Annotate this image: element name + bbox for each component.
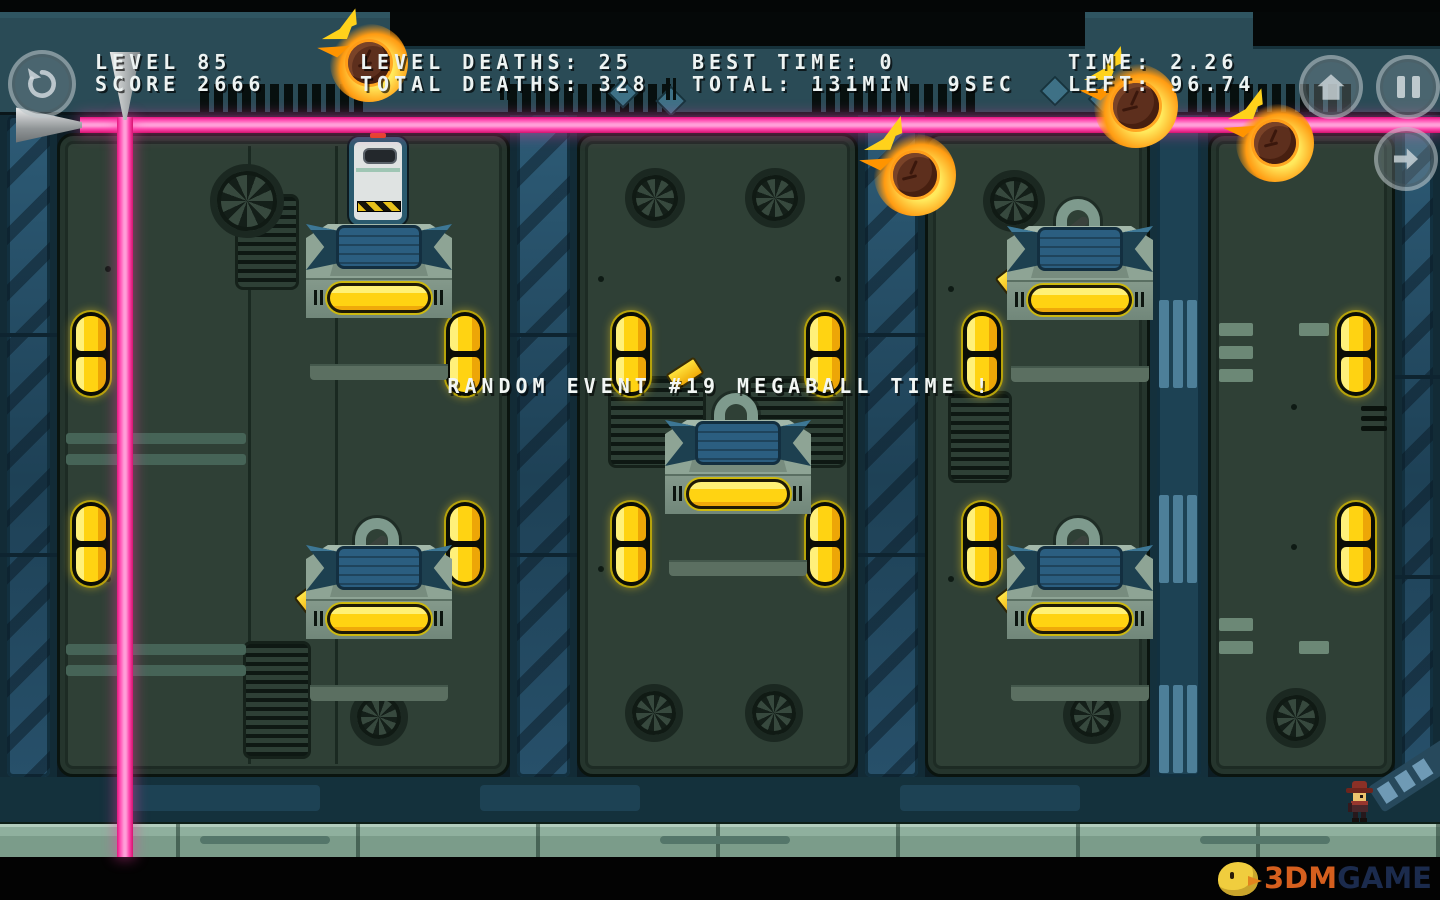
pillar-seam	[858, 333, 925, 337]
capsule-segment	[76, 547, 106, 582]
rivet	[948, 286, 954, 292]
rivet	[1291, 544, 1297, 550]
wall-window	[1377, 781, 1399, 804]
hud-best-time: BEST TIME: 0	[692, 50, 897, 74]
pillar-pattern	[1402, 115, 1433, 777]
machine-mark	[673, 486, 683, 501]
vent-slit	[1361, 426, 1387, 431]
capsule-segment	[1341, 547, 1371, 582]
game-stage: LEVEL 85 SCORE 2666 LEVEL DEATHS: 25 TOT…	[0, 0, 1440, 900]
machine-light	[1028, 285, 1132, 315]
capsule-segment	[967, 316, 997, 351]
watermark-3dm: 3DM	[1264, 861, 1337, 895]
restart-icon	[22, 64, 62, 104]
bottom-black-bar: 3DMGAME	[0, 857, 1440, 900]
accent-strip	[66, 665, 246, 676]
vent-panel	[243, 641, 311, 759]
pod-accent-line	[356, 168, 400, 172]
machine-plate	[336, 546, 422, 590]
hud-time: TIME: 2.26	[1068, 50, 1238, 74]
floor-slot	[1200, 836, 1330, 844]
fan-grill	[625, 168, 685, 228]
accent-strip	[1219, 323, 1253, 336]
rivet	[835, 276, 841, 282]
rivet	[598, 276, 604, 282]
top-black-bar	[0, 0, 1440, 12]
hud-recess	[1253, 12, 1440, 49]
hud-recess	[390, 12, 1085, 49]
home-button[interactable]	[1299, 55, 1363, 119]
machine-base	[1011, 685, 1149, 701]
accent-strip	[1219, 618, 1253, 631]
accent-strip	[1219, 346, 1253, 359]
door-panel-4	[1208, 133, 1395, 777]
fan-grill	[745, 684, 803, 742]
capsule-light	[1337, 502, 1375, 586]
vent-slit	[1361, 406, 1387, 411]
player-character	[1344, 781, 1374, 822]
machine-lower-body	[1007, 545, 1153, 591]
machine-mark	[434, 290, 444, 305]
crusher-machine-turret	[1007, 226, 1153, 382]
pause-icon	[1397, 76, 1420, 98]
capsule-segment	[616, 506, 646, 541]
hero-scarf	[1351, 801, 1368, 805]
mascot-eye	[1230, 872, 1234, 879]
accent-strip	[66, 454, 246, 465]
machine-mark	[434, 611, 444, 626]
pillar-stripe	[1173, 495, 1183, 583]
hud-diamond-accent	[1039, 75, 1070, 106]
hud-level: LEVEL 85	[95, 50, 231, 74]
capsule-segment	[76, 316, 106, 351]
random-event-banner: RANDOM EVENT #19 MEGABALL TIME !	[0, 374, 1440, 398]
wall-window	[1394, 770, 1416, 793]
rivet	[598, 566, 604, 572]
next-arrow-icon	[1389, 142, 1423, 176]
floor-ledge	[0, 822, 1440, 857]
pillar-seam	[0, 553, 57, 557]
capsule-segment	[450, 506, 480, 541]
machine-light	[327, 604, 431, 634]
capsule-segment	[810, 316, 840, 351]
pillar-seam	[1395, 575, 1440, 579]
machine-lower-body	[306, 545, 452, 591]
machine-mark	[1015, 292, 1025, 307]
hud-total-time: TOTAL: 131MIN 9SEC	[692, 72, 1016, 96]
capsule-segment	[76, 506, 106, 541]
fan-grill	[210, 164, 284, 238]
capsule-segment	[810, 506, 840, 541]
capsule-light	[612, 502, 650, 586]
capsule-light	[963, 502, 1001, 586]
pillar-seam	[858, 553, 925, 557]
machine-base	[310, 685, 448, 701]
mascot-icon	[1218, 860, 1262, 896]
restart-button[interactable]	[8, 50, 76, 118]
pause-bar	[1412, 76, 1420, 98]
hud-score: SCORE 2666	[95, 72, 265, 96]
pillar-stripe	[1159, 495, 1169, 583]
machine-mark	[1135, 292, 1145, 307]
hud-tick-mark	[666, 78, 676, 100]
pillar-stripe	[1159, 685, 1169, 773]
capsule-light	[72, 502, 110, 586]
hazard-stripe	[357, 201, 401, 212]
floor-slot	[200, 836, 330, 844]
fan-grill	[1266, 688, 1326, 748]
pillar-seam	[0, 333, 57, 337]
hero-arm	[1348, 803, 1352, 812]
hero-boot	[1352, 818, 1359, 822]
pillar-seam	[510, 333, 577, 337]
pillar-pattern	[7, 115, 50, 777]
wall-window	[1412, 758, 1434, 781]
pod-window	[363, 148, 397, 164]
machine-light	[686, 479, 790, 509]
machine-plate	[1037, 227, 1123, 271]
rivet	[1291, 404, 1297, 410]
pillar-stripe	[1187, 685, 1197, 773]
machine-lower-body	[665, 420, 811, 466]
wall-silhouette	[480, 785, 640, 811]
capsule-light	[806, 502, 844, 586]
hero-eye	[1360, 795, 1363, 798]
crusher-machine	[306, 224, 452, 380]
machine-plate	[336, 225, 422, 269]
lower-wall-band	[0, 777, 1440, 822]
hud-time-left: LEFT: 96.74	[1068, 72, 1255, 96]
home-icon	[1314, 70, 1348, 104]
crusher-machine-turret	[1007, 545, 1153, 701]
wall-pillar-striped	[1150, 115, 1208, 777]
wall-pillar	[0, 115, 57, 777]
hud-level-deaths: LEVEL DEATHS: 25	[360, 50, 633, 74]
accent-strip	[66, 644, 246, 655]
machine-mark	[1015, 611, 1025, 626]
next-level-button[interactable]	[1374, 127, 1438, 191]
capsule-segment	[616, 547, 646, 582]
rivet	[105, 266, 111, 272]
accent-strip	[66, 433, 246, 444]
pillar-column	[1157, 115, 1201, 777]
capsule-segment	[1341, 316, 1371, 351]
pod-red-light	[370, 133, 386, 138]
megaball-fireball	[882, 142, 948, 208]
pause-button[interactable]	[1376, 55, 1440, 119]
hud-total-deaths: TOTAL DEATHS: 328	[360, 72, 650, 96]
wall-pillar	[510, 115, 577, 777]
machine-base	[669, 560, 807, 576]
capsule-segment	[967, 547, 997, 582]
watermark: 3DMGAME	[1218, 860, 1432, 896]
machine-lower-body	[306, 224, 452, 270]
crusher-machine-turret	[306, 545, 452, 701]
mascot-beak	[1248, 876, 1262, 886]
pillar-pattern	[517, 115, 570, 777]
machine-mark	[1135, 611, 1145, 626]
accent-strip	[1299, 323, 1329, 336]
crusher-machine	[665, 420, 811, 576]
watermark-game: GAME	[1337, 861, 1432, 895]
pillar-stripe	[1187, 495, 1197, 583]
machine-mark	[314, 611, 324, 626]
fan-grill	[745, 168, 805, 228]
accent-strip	[1219, 641, 1253, 654]
pillar-stripe	[1173, 685, 1183, 773]
megaball-fireball	[1244, 112, 1306, 174]
machine-mark	[793, 486, 803, 501]
capsule-segment	[616, 316, 646, 351]
fan-grill	[625, 684, 683, 742]
white-door-pod	[349, 137, 407, 225]
capsule-segment	[967, 506, 997, 541]
machine-plate	[695, 421, 781, 465]
accent-strip	[1299, 641, 1329, 654]
laser-beam-vertical	[117, 117, 133, 857]
wall-silhouette	[120, 785, 320, 811]
pause-bar	[1397, 76, 1405, 98]
floor-slot	[660, 836, 790, 844]
capsule-segment	[450, 547, 480, 582]
fan-grill	[983, 170, 1045, 232]
play-field	[0, 115, 1440, 822]
machine-mark	[314, 290, 324, 305]
machine-plate	[1037, 546, 1123, 590]
capsule-segment	[810, 547, 840, 582]
wall-silhouette	[900, 785, 1080, 811]
machine-light	[327, 283, 431, 313]
rivet	[948, 576, 954, 582]
vent-panel	[948, 391, 1012, 483]
capsule-segment	[450, 316, 480, 351]
machine-light	[1028, 604, 1132, 634]
machine-lower-body	[1007, 226, 1153, 272]
hero-boot	[1360, 818, 1367, 822]
wall-pillar	[1395, 115, 1440, 777]
pillar-seam	[510, 553, 577, 557]
vent-slit	[1361, 416, 1387, 421]
capsule-segment	[1341, 506, 1371, 541]
